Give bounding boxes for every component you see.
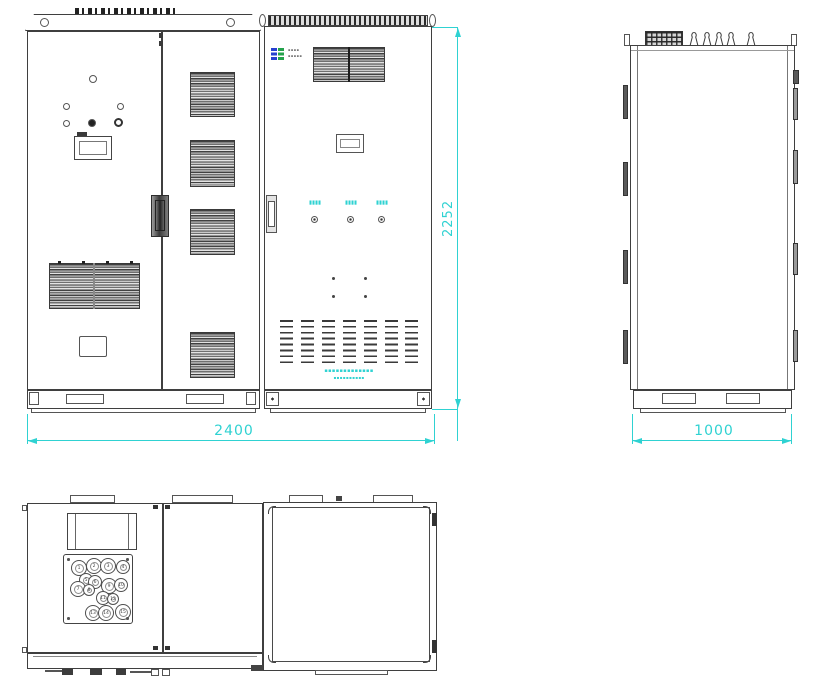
rear-tab <box>172 495 233 503</box>
screw-pair-dot <box>165 646 170 650</box>
front-hardware <box>162 669 170 676</box>
side-view: 1000 <box>0 0 833 460</box>
latch-detail <box>793 150 798 184</box>
screw-pair-dot <box>153 505 158 509</box>
side-body-inner-line <box>787 46 788 389</box>
dim-depth-label: 1000 <box>686 424 742 439</box>
latch-detail <box>793 330 798 362</box>
top-panel-rail <box>128 514 129 549</box>
cable-gland-number: 4 <box>117 561 129 573</box>
front-tab <box>315 670 388 675</box>
side-body-inner-line <box>637 46 638 389</box>
roof-insulator-fitting <box>688 29 700 46</box>
dim-line-depth <box>632 440 792 441</box>
plate-screw <box>67 558 70 561</box>
cable-gland: 8 <box>83 584 95 596</box>
dim-arrow <box>633 438 642 444</box>
front-hardware <box>62 669 73 675</box>
hinge-tick <box>623 85 628 119</box>
front-hardware <box>90 668 102 675</box>
cable-gland: 14 <box>98 605 114 621</box>
top-divider <box>162 503 164 653</box>
roof-insulator-fitting <box>713 29 725 46</box>
cable-gland: 12 <box>107 593 119 605</box>
cable-gland-number: 2 <box>87 559 101 573</box>
side-hinge-mark <box>432 640 437 653</box>
cable-gland-number: 14 <box>99 606 113 620</box>
rear-nub <box>336 496 342 501</box>
roof-insulator-fitting <box>725 29 737 46</box>
front-hardware <box>151 669 159 676</box>
front-hardware <box>251 665 263 671</box>
cable-gland-number: 3 <box>101 559 115 573</box>
top-panel-rail <box>75 514 76 549</box>
front-hardware <box>116 669 126 675</box>
cable-gland-number: 8 <box>84 585 94 595</box>
drawing-canvas: ▪▪▪▪ ▪▪▪▪▪ ▮▮▮▮ ▮▮▮▮ ▮▮▮▮ ▪▪▪▪▪▪▪▪▪▪▪▪▪ … <box>0 0 833 696</box>
screw-pair-dot <box>165 505 170 509</box>
plate-screw <box>126 617 129 620</box>
rear-tab <box>70 495 115 503</box>
dim-arrow <box>782 438 791 444</box>
cable-gland: 3 <box>100 558 116 574</box>
cable-gland: 10 <box>114 578 128 592</box>
side-hinge-mark <box>432 513 437 526</box>
plinth-slot <box>726 393 760 404</box>
latch-detail <box>793 88 798 120</box>
hinge-tick <box>623 330 628 364</box>
side-cabinet-body <box>630 45 795 390</box>
cable-gland-number: 10 <box>115 579 127 591</box>
roof-fan-block <box>645 31 683 46</box>
gland-plate: 123456789101112131415 <box>63 554 133 624</box>
corner-hinge <box>268 506 276 514</box>
plate-screw <box>67 617 70 620</box>
latch-detail <box>793 70 799 84</box>
top-panel <box>67 513 137 550</box>
screw-pair-dot <box>153 646 158 650</box>
cable-gland: 15 <box>115 604 131 620</box>
latch-detail <box>793 243 798 275</box>
top-view: 123456789101112131415 <box>0 460 470 696</box>
side-plinth <box>633 390 792 409</box>
plinth-slot <box>662 393 696 404</box>
hinge-tick <box>623 162 628 196</box>
edge-tick <box>22 505 27 511</box>
plate-screw <box>126 558 129 561</box>
plinth-lip <box>640 409 786 413</box>
roof-insulator-fitting <box>745 29 757 46</box>
hinge-tick <box>623 250 628 284</box>
roof-insulator-fitting <box>701 29 713 46</box>
front-edge-inner-line <box>33 656 257 657</box>
cable-gland: 4 <box>116 560 130 574</box>
cable-gland-number: 12 <box>108 594 118 604</box>
side-body-top-line <box>631 50 794 51</box>
top-right-inner <box>272 507 430 662</box>
